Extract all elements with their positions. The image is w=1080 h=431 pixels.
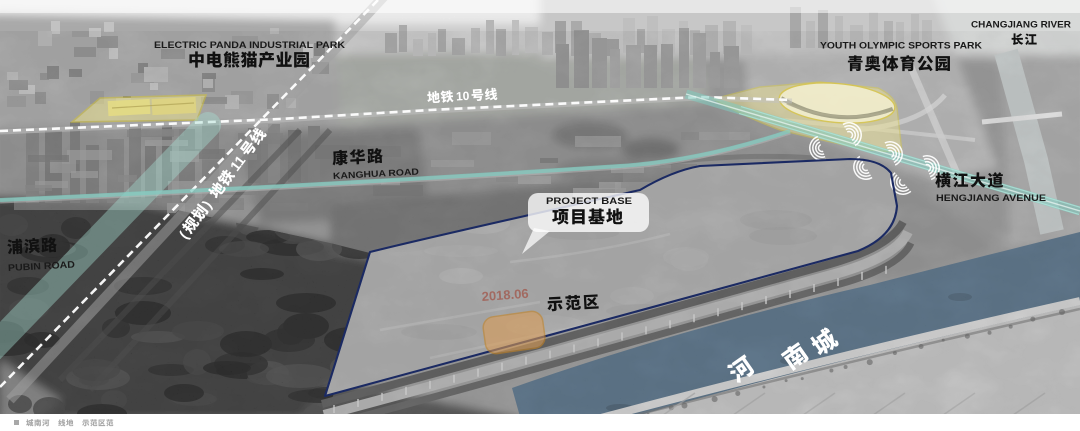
svg-text:ELECTRIC PANDA INDUSTRIAL PARK: ELECTRIC PANDA INDUSTRIAL PARK	[154, 40, 345, 51]
svg-text:YOUTH OLYMPIC SPORTS PARK: YOUTH OLYMPIC SPORTS PARK	[820, 41, 982, 52]
svg-text:CHANGJIANG RIVER: CHANGJIANG RIVER	[971, 20, 1071, 31]
svg-text:HENGJIANG AVENUE: HENGJIANG AVENUE	[936, 193, 1046, 204]
svg-text:10: 10	[456, 89, 470, 104]
svg-text:PROJECT BASE: PROJECT BASE	[546, 196, 632, 206]
